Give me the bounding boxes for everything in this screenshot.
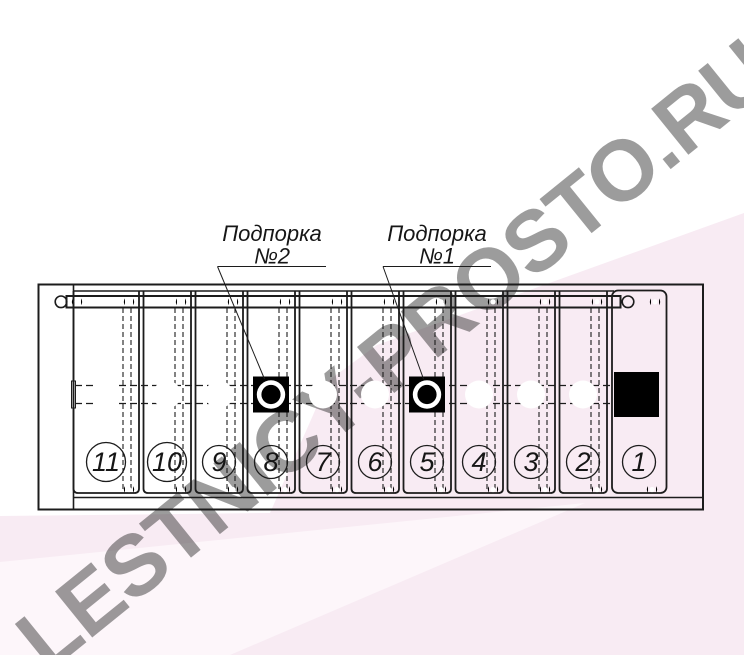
plank-number: 2 (574, 447, 590, 477)
plank-number: 4 (471, 447, 486, 477)
rod-hole-icon (153, 381, 181, 409)
plank-number: 5 (419, 447, 435, 477)
anchor-mount-icon (614, 372, 659, 417)
rod-hole-icon (309, 381, 337, 409)
support-label-line2: №2 (254, 244, 290, 269)
support-label-line1: Подпорка (387, 221, 487, 246)
rod-hole-icon (361, 381, 389, 409)
support-mount-icon (253, 377, 289, 413)
rod-hole-icon (569, 381, 597, 409)
rod-hole-icon (205, 381, 233, 409)
support-label-line1: Подпорка (222, 221, 322, 246)
support-label-line2: №1 (419, 244, 455, 269)
rod-hole-icon (92, 381, 120, 409)
technical-drawing-page: LESTNICY-PROSTO.RU 11 10 (0, 0, 744, 655)
plank-number: 6 (367, 447, 383, 477)
rod-hole-icon (517, 381, 545, 409)
plank-number: 1 (631, 447, 646, 477)
drawing-canvas: LESTNICY-PROSTO.RU 11 10 (0, 0, 744, 655)
support-mount-icon (409, 377, 445, 413)
plank-number: 9 (211, 447, 226, 477)
plank-number: 11 (92, 447, 120, 477)
plank-number: 3 (523, 447, 538, 477)
plank-number: 8 (263, 447, 278, 477)
plank-number: 10 (152, 447, 182, 477)
rod-hole-icon (465, 381, 493, 409)
plank-number: 7 (315, 447, 331, 477)
